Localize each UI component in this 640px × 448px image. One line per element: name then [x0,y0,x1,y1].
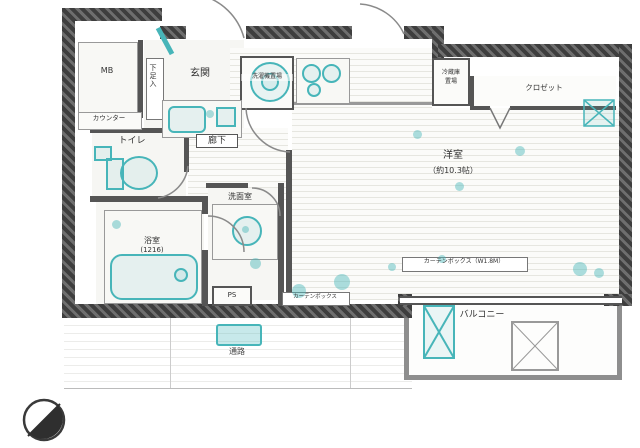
western-room-size-label: （約10.3帖） [398,166,508,175]
bath-drain-icon [174,268,188,282]
kitchen-sink-icon [168,106,206,133]
washbasin-drain-icon [242,226,249,233]
partition-mb-right [138,40,143,118]
fixture-dot-4 [334,274,350,290]
stove-burner-icon-3 [307,83,321,97]
balcony-label: バルコニー [442,310,522,320]
partition-toilet-right [184,132,189,172]
passage-label: 通路 [216,347,258,356]
mb-room [78,42,138,114]
bathroom-size-label: (1216) [130,246,174,254]
partition-bath-wash-a [202,200,208,214]
fixture-dot-6 [573,262,587,276]
service-door-arc [360,4,404,34]
stove-burner-icon-2 [322,64,341,83]
hallway-label: 廊下 [196,134,238,148]
toilet-bowl-icon [120,156,158,190]
wall-top-left [62,8,162,21]
partition-bath-wash-b [202,250,208,306]
partition-closet-front-a [470,106,490,110]
wall-left [62,8,75,318]
stove-burner-icon-1 [302,64,321,83]
toilet-label: トイレ [102,136,162,146]
partition-closet-left [470,76,474,110]
floor-plan: MB 玄関 下足入 カウンター トイレ 廊下 洗面室 浴室 (1216) 洗濯機… [0,0,640,448]
fixture-dot-7 [594,268,604,278]
partition-toilet-bottom [90,196,208,202]
fixture-dot-9 [388,263,396,271]
toilet-hand-wash-icon [94,146,112,161]
washroom-label: 洗面室 [210,192,270,201]
kitchen-faucet-icon [206,110,214,118]
window-south [400,296,622,305]
curtain-box-right-label: カーテンボックス（W1.8M） [402,259,526,266]
fridge-label-line1: 冷蔵庫 [433,70,469,77]
kitchen-hob-icon [216,107,236,127]
partition-closet-front-b [510,106,616,110]
entrance-label: 玄関 [170,68,230,80]
wall-top-b2 [246,26,352,39]
stove-counter [296,58,350,104]
compass-icon [24,400,64,440]
shower-icon [112,220,121,229]
wall-top-b1 [160,26,186,39]
closet-label: クロゼット [472,84,616,93]
counter-label: カウンター [78,115,140,122]
fixture-dot-3 [455,182,464,191]
partition-hall-room [286,150,292,304]
wall-right [619,44,632,304]
bathroom-label: 浴室 [130,236,174,245]
partition-wash-top [206,183,248,188]
washing-machine-label: 洗濯機置場 [241,74,293,81]
wall-top-right [438,44,632,57]
fixture-dot-2 [515,146,525,156]
mb-label: MB [82,66,132,75]
corridor-stamp-badge [216,324,262,346]
shoe-cabinet-label: 下足入 [149,64,157,88]
fridge-label-line2: 置場 [433,79,469,86]
curtain-box-left-label: カーテンボックス [282,294,348,300]
pipe-space-label: PS [212,291,252,299]
corridor-divider-right [350,318,351,388]
wall-bottom [62,304,412,318]
entrance-door-arc [200,0,244,38]
fixture-dot-1 [413,130,422,139]
washroom-fixture-icon [250,258,261,269]
corridor-divider-left [170,318,171,388]
western-room-label: 洋室 [408,150,498,162]
partition-wash-right [278,183,284,306]
